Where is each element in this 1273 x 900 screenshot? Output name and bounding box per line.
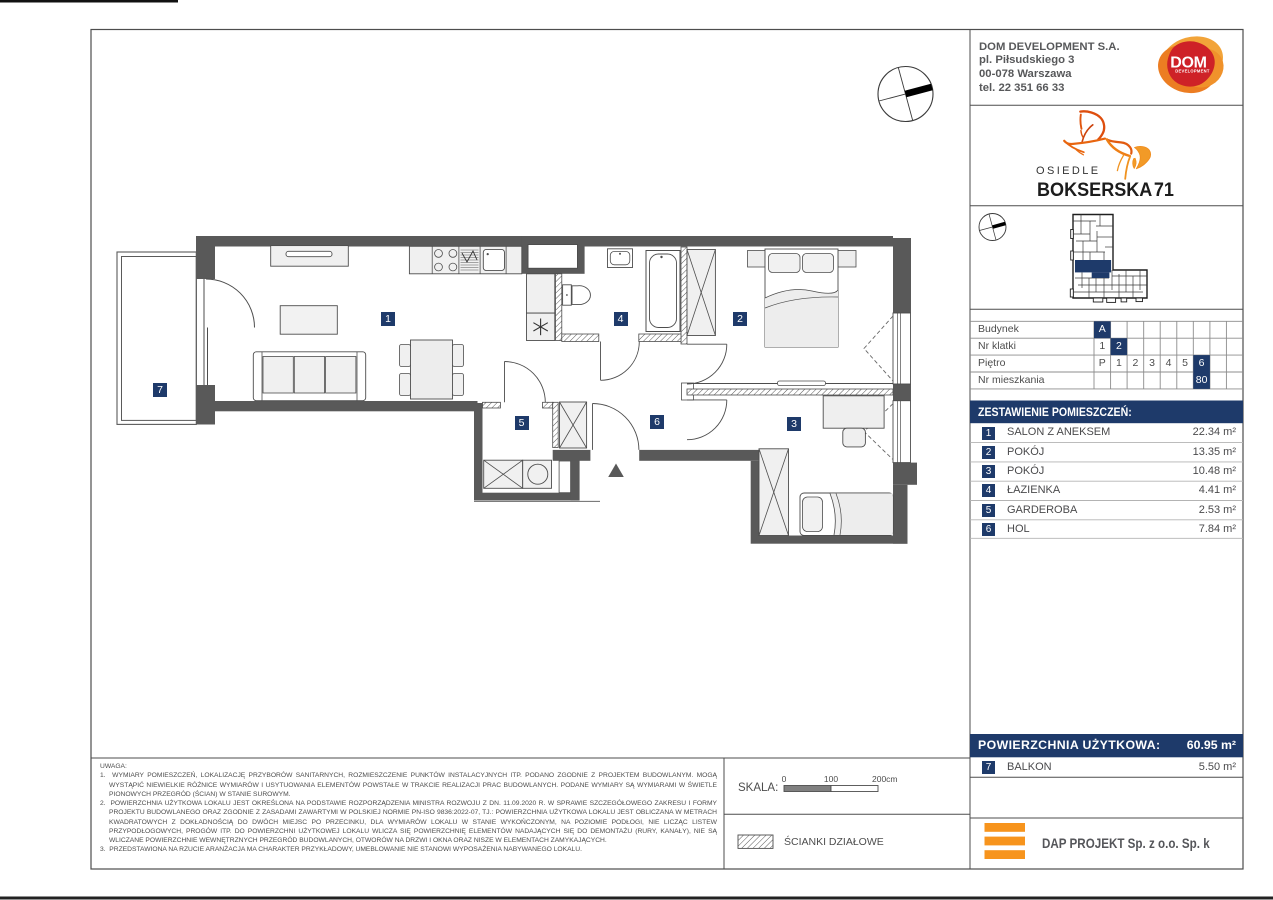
svg-text:DEVELOPMENT: DEVELOPMENT [1175,69,1210,74]
